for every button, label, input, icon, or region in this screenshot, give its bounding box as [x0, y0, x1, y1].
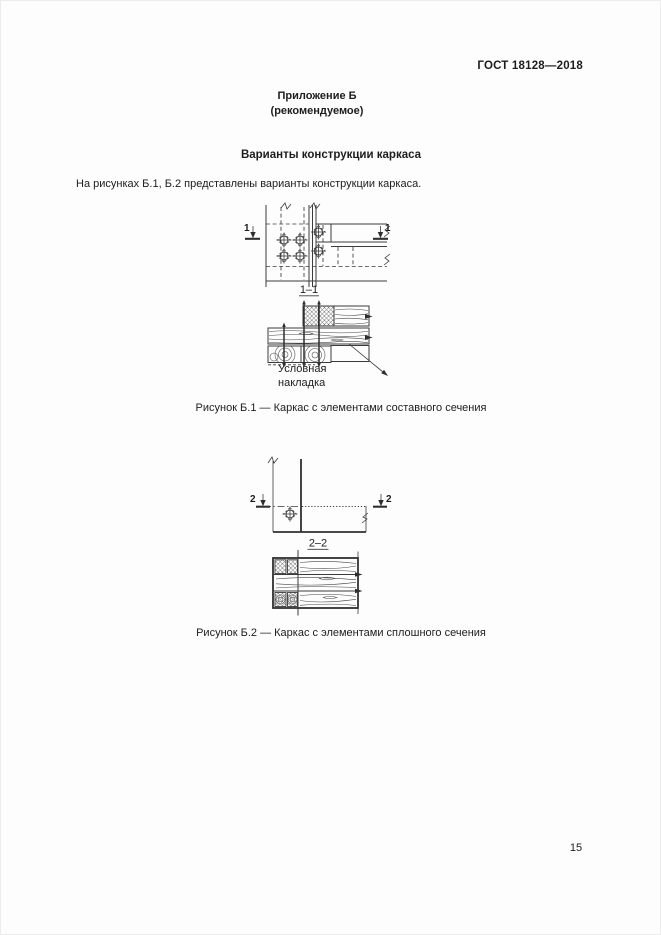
b2-cut-mark-right: 2 — [373, 494, 392, 507]
bolt-symbols — [277, 225, 327, 264]
cut-label: 2 — [386, 494, 392, 505]
figure-b1-drawing: 1 1 1–1 — [231, 197, 411, 391]
appendix-subtitle: (рекомендуемое) — [227, 104, 407, 119]
appendix-title: Приложение Б — [227, 89, 407, 104]
b1-cut-mark-left: 1 — [244, 223, 260, 239]
b1-section-label: 1–1 — [300, 284, 318, 296]
b2-section-label: 2–2 — [309, 538, 327, 550]
cut-label: 2 — [250, 494, 256, 505]
b2-plan-view: 2 2 — [250, 457, 392, 532]
b2-cut-mark-left: 2 — [250, 494, 270, 507]
figure-b2-drawing: 2 2 2–2 — [241, 449, 401, 621]
break-mark — [310, 203, 320, 209]
cut-label: 1 — [244, 223, 250, 234]
cut-label: 1 — [385, 223, 391, 234]
figure-b1-caption: Рисунок Б.1 — Каркас с элементами состав… — [171, 402, 511, 414]
break-mark — [384, 254, 390, 265]
intro-text: На рисунках Б.1, Б.2 представлены вариан… — [76, 178, 421, 190]
b2-section-view — [273, 550, 363, 616]
figure-b1-callout: Условная накладка — [278, 363, 346, 390]
b1-plan-view: 1 1 — [244, 203, 391, 287]
b1-cut-mark-right: 1 — [373, 223, 391, 239]
section-title: Варианты конструкции каркаса — [191, 149, 471, 161]
appendix-heading: Приложение Б (рекомендуемое) — [227, 89, 407, 118]
figure-b2-caption: Рисунок Б.2 — Каркас с элементами сплошн… — [171, 627, 511, 639]
page-number: 15 — [565, 842, 587, 854]
standard-number: ГОСТ 18128—2018 — [477, 60, 583, 72]
break-mark — [362, 513, 368, 523]
bolt-symbol — [283, 507, 298, 522]
break-mark — [281, 203, 291, 209]
document-page: ГОСТ 18128—2018 Приложение Б (рекомендуе… — [0, 0, 661, 935]
